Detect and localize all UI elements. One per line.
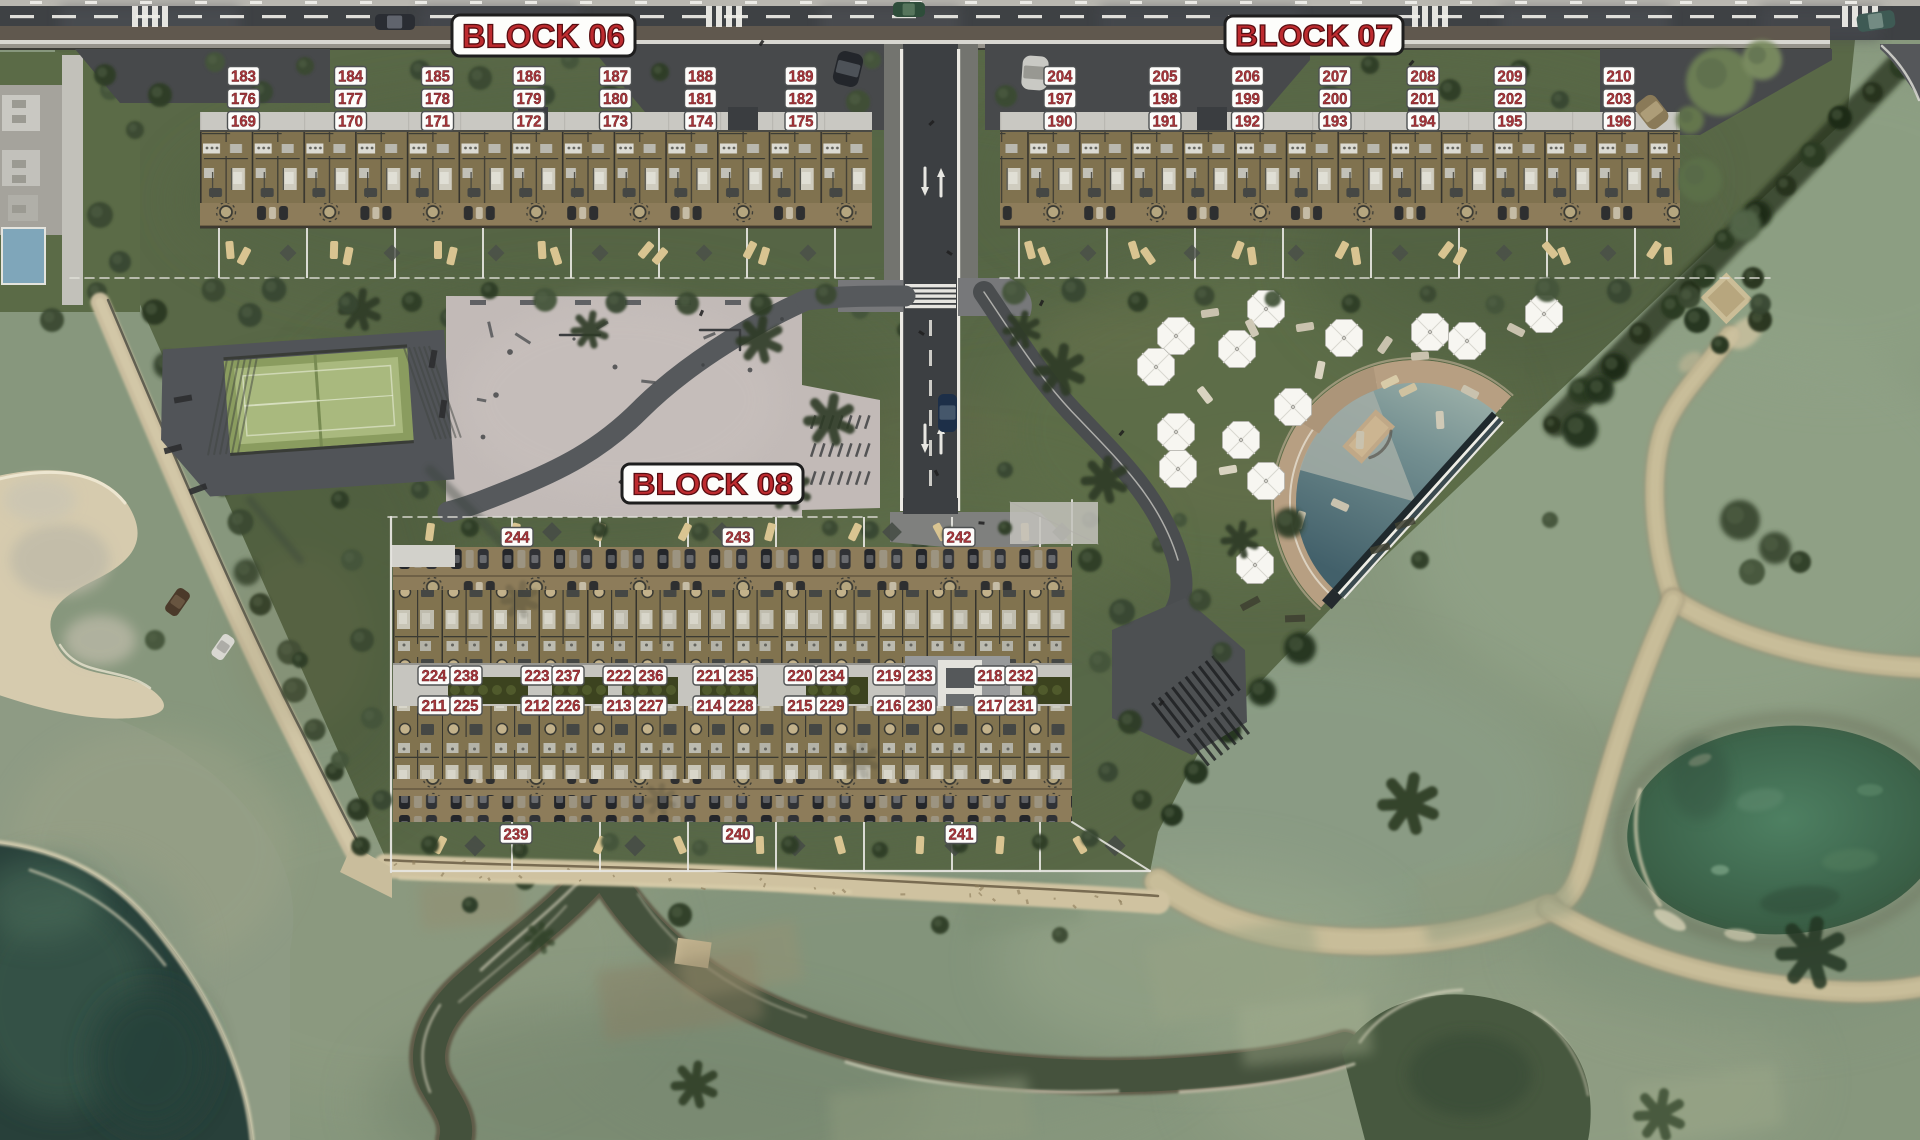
svg-text:223: 223: [525, 668, 550, 685]
svg-text:212: 212: [525, 698, 550, 715]
svg-text:BLOCK 07: BLOCK 07: [1235, 18, 1393, 53]
svg-text:188: 188: [688, 69, 713, 86]
svg-text:230: 230: [908, 698, 933, 715]
svg-text:201: 201: [1411, 91, 1436, 108]
svg-text:174: 174: [688, 114, 713, 131]
svg-text:222: 222: [607, 668, 632, 685]
svg-text:197: 197: [1048, 91, 1073, 108]
svg-text:224: 224: [422, 668, 447, 685]
svg-text:220: 220: [788, 668, 813, 685]
svg-text:177: 177: [338, 91, 363, 108]
svg-text:196: 196: [1607, 114, 1632, 131]
svg-text:BLOCK 06: BLOCK 06: [462, 17, 625, 54]
svg-text:204: 204: [1048, 69, 1073, 86]
svg-text:215: 215: [788, 698, 813, 715]
svg-text:241: 241: [949, 827, 974, 844]
svg-text:202: 202: [1498, 91, 1523, 108]
svg-text:229: 229: [820, 698, 845, 715]
svg-text:170: 170: [338, 114, 363, 131]
svg-text:244: 244: [505, 530, 530, 547]
svg-text:213: 213: [607, 698, 632, 715]
svg-text:205: 205: [1153, 69, 1178, 86]
svg-text:216: 216: [877, 698, 902, 715]
svg-text:218: 218: [978, 668, 1003, 685]
svg-text:217: 217: [978, 698, 1003, 715]
svg-text:189: 189: [789, 69, 814, 86]
svg-text:BLOCK 08: BLOCK 08: [632, 467, 793, 502]
svg-text:172: 172: [517, 114, 542, 131]
svg-text:184: 184: [338, 69, 363, 86]
svg-text:194: 194: [1411, 114, 1436, 131]
svg-text:198: 198: [1153, 91, 1178, 108]
svg-text:181: 181: [688, 91, 713, 108]
svg-text:193: 193: [1323, 114, 1348, 131]
svg-text:178: 178: [425, 91, 450, 108]
svg-text:238: 238: [454, 668, 479, 685]
svg-text:190: 190: [1048, 114, 1073, 131]
svg-text:191: 191: [1153, 114, 1178, 131]
svg-text:211: 211: [422, 698, 447, 715]
svg-text:199: 199: [1235, 91, 1260, 108]
svg-text:182: 182: [789, 91, 814, 108]
svg-text:243: 243: [726, 530, 751, 547]
svg-text:206: 206: [1235, 69, 1260, 86]
svg-text:173: 173: [603, 114, 628, 131]
svg-text:233: 233: [908, 668, 933, 685]
svg-text:242: 242: [947, 530, 972, 547]
svg-text:219: 219: [877, 668, 902, 685]
svg-text:232: 232: [1009, 668, 1034, 685]
svg-text:192: 192: [1235, 114, 1260, 131]
svg-text:210: 210: [1607, 69, 1632, 86]
svg-text:227: 227: [639, 698, 664, 715]
svg-text:183: 183: [231, 69, 256, 86]
svg-text:180: 180: [603, 91, 628, 108]
svg-text:239: 239: [504, 827, 529, 844]
svg-text:225: 225: [454, 698, 479, 715]
svg-text:226: 226: [556, 698, 581, 715]
svg-text:237: 237: [556, 668, 581, 685]
svg-text:221: 221: [697, 668, 722, 685]
svg-text:195: 195: [1498, 114, 1523, 131]
svg-text:208: 208: [1411, 69, 1436, 86]
svg-text:200: 200: [1323, 91, 1348, 108]
svg-text:234: 234: [820, 668, 845, 685]
svg-text:171: 171: [425, 114, 450, 131]
svg-text:179: 179: [517, 91, 542, 108]
svg-text:235: 235: [729, 668, 754, 685]
svg-text:203: 203: [1607, 91, 1632, 108]
svg-text:176: 176: [231, 91, 256, 108]
svg-text:214: 214: [697, 698, 722, 715]
svg-text:187: 187: [603, 69, 628, 86]
svg-text:207: 207: [1323, 69, 1348, 86]
svg-text:209: 209: [1498, 69, 1523, 86]
svg-text:169: 169: [231, 114, 256, 131]
svg-text:185: 185: [425, 69, 450, 86]
svg-text:240: 240: [726, 827, 751, 844]
svg-text:186: 186: [517, 69, 542, 86]
svg-text:228: 228: [729, 698, 754, 715]
svg-text:236: 236: [639, 668, 664, 685]
svg-text:231: 231: [1009, 698, 1034, 715]
svg-text:175: 175: [789, 114, 814, 131]
